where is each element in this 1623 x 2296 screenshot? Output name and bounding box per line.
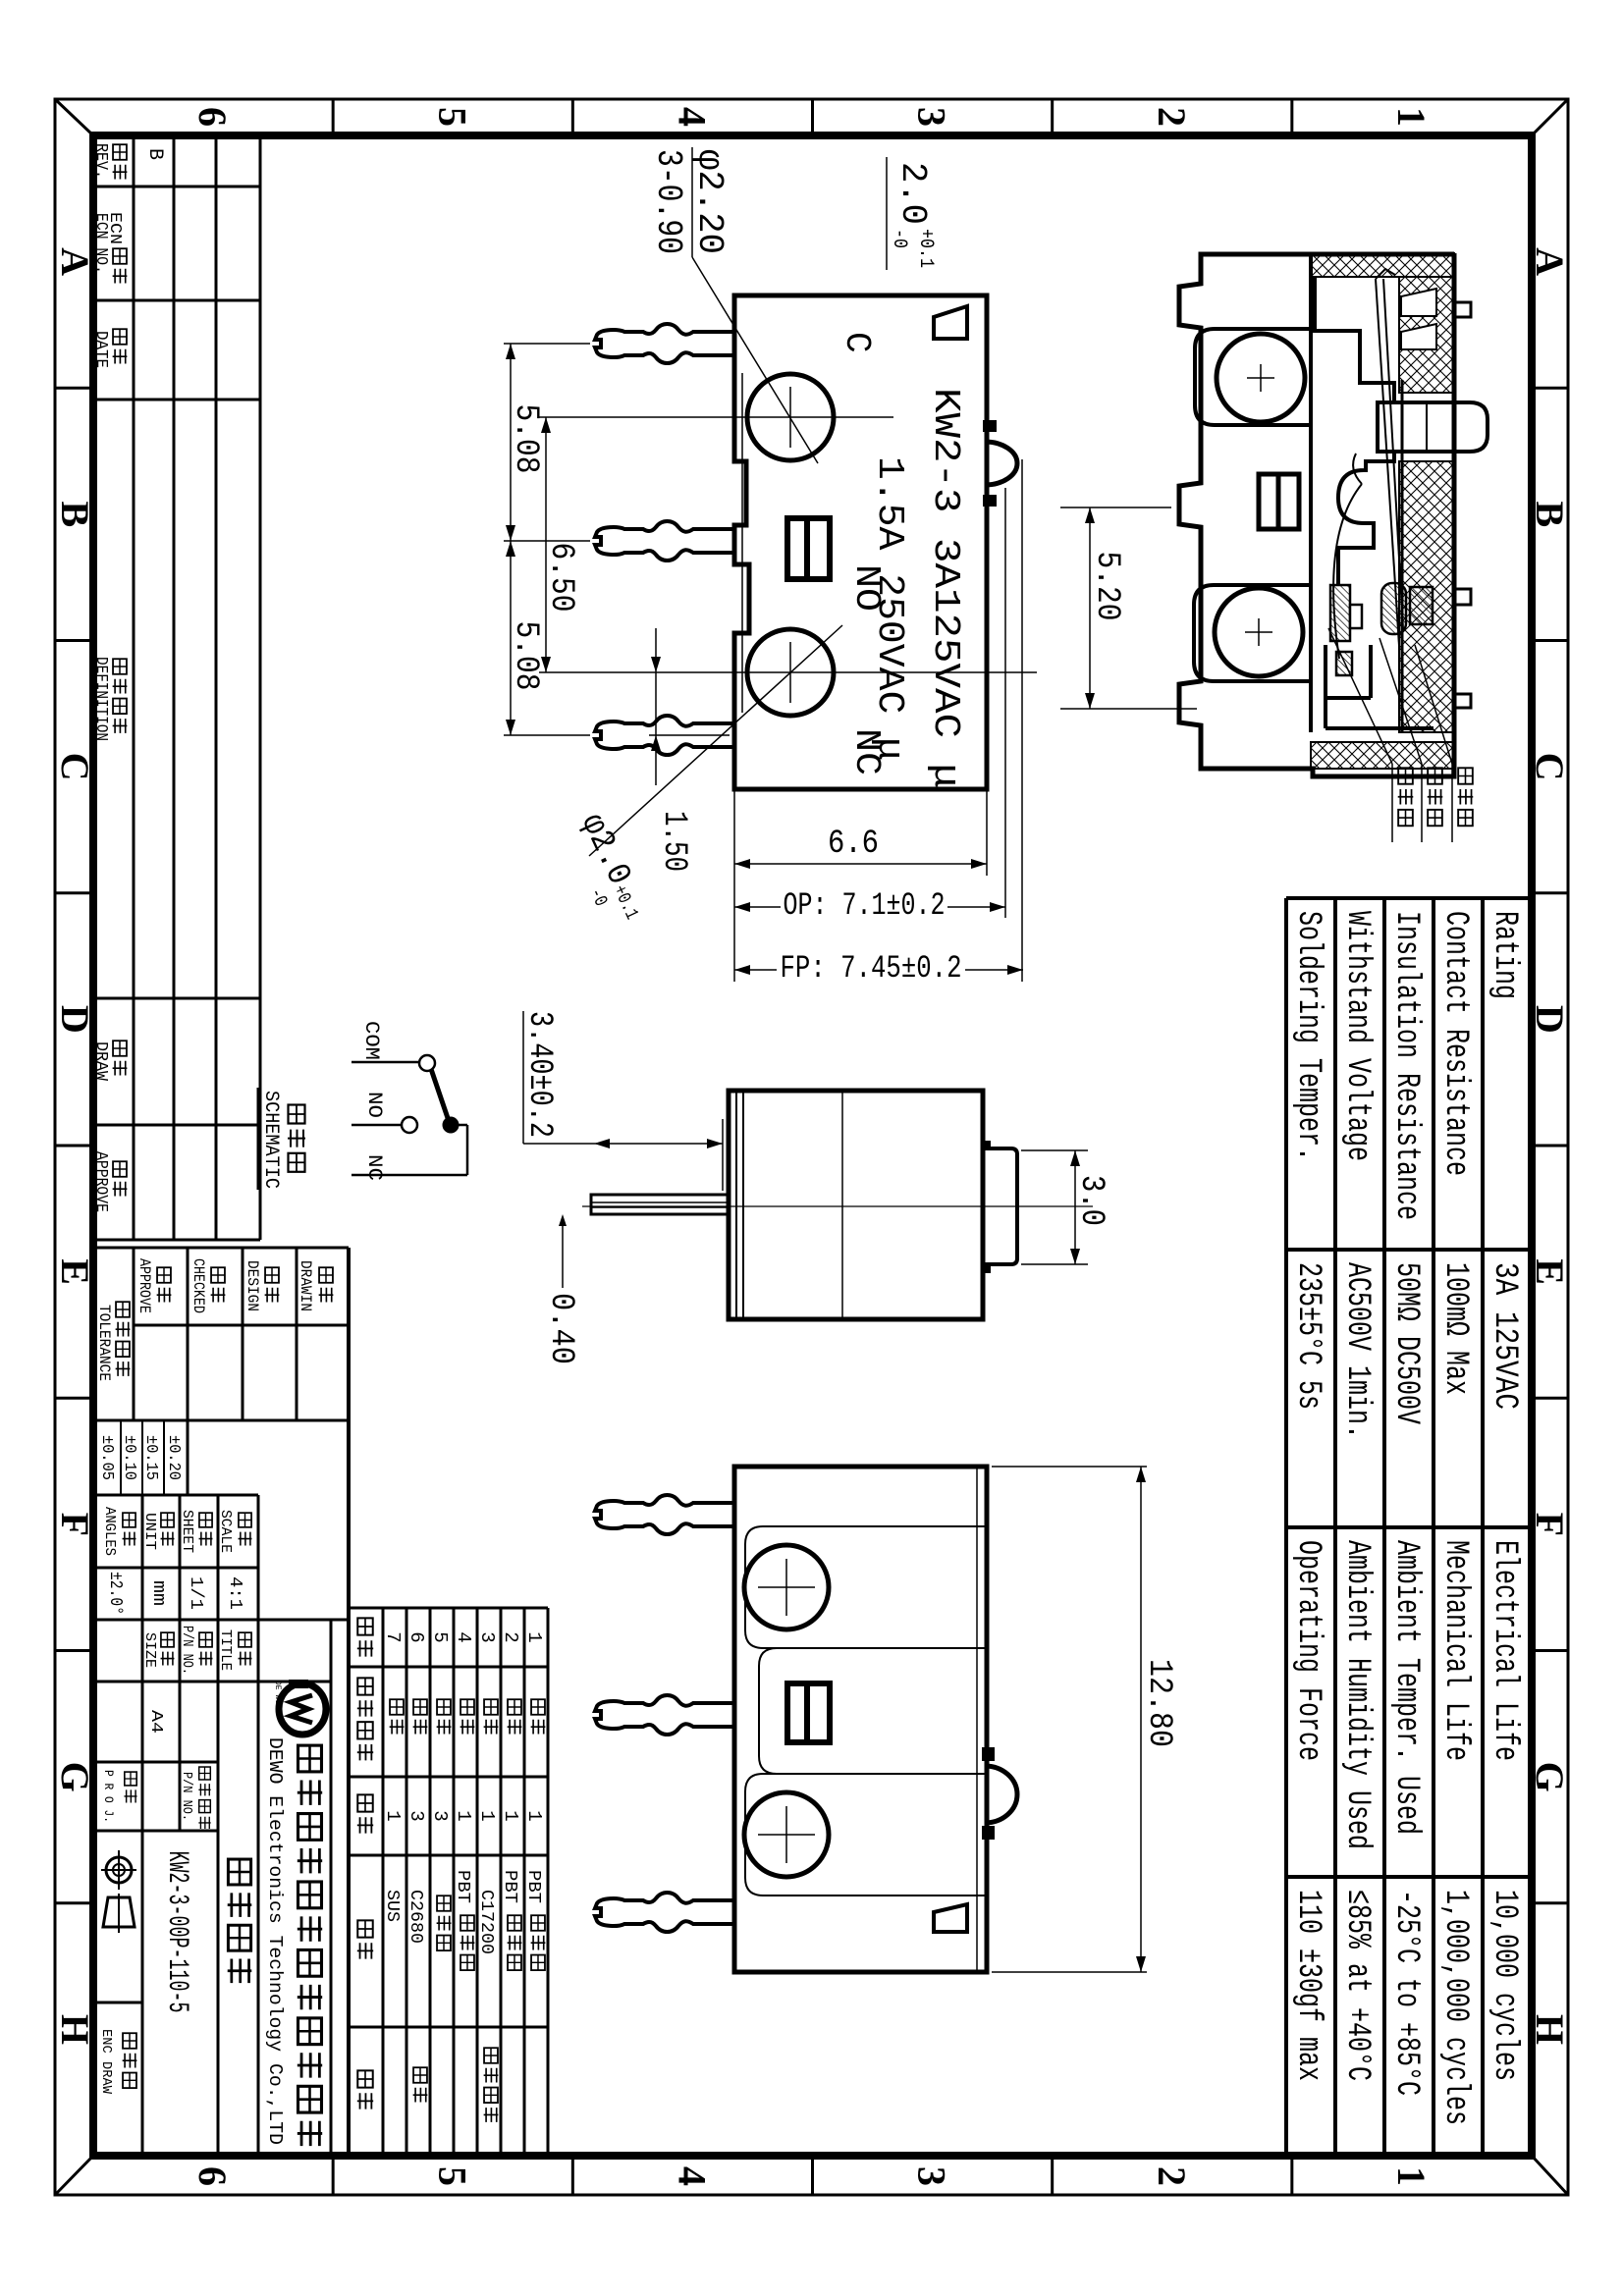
svg-text:±0.10: ±0.10	[120, 1435, 138, 1480]
svg-text:4: 4	[670, 2166, 714, 2186]
svg-text:SHEET: SHEET	[179, 1510, 195, 1553]
svg-text:3A 125VAC: 3A 125VAC	[1486, 1262, 1523, 1410]
svg-text:B: B	[1528, 502, 1572, 528]
svg-text:REV.: REV.	[91, 143, 110, 179]
svg-text:6.6: 6.6	[828, 826, 879, 863]
svg-text:-0: -0	[888, 229, 910, 248]
svg-text:APPROVE: APPROVE	[91, 1151, 110, 1212]
svg-text:ECN NO.: ECN NO.	[91, 213, 110, 274]
svg-text:Withstand Voltage: Withstand Voltage	[1338, 911, 1376, 1161]
svg-text:5.20: 5.20	[1088, 552, 1125, 621]
svg-text:Insulation Resistance: Insulation Resistance	[1387, 911, 1425, 1220]
svg-text:±0.20: ±0.20	[164, 1435, 183, 1480]
svg-text:KW2-3 3A125VAC μ: KW2-3 3A125VAC μ	[924, 388, 966, 788]
svg-text:2: 2	[500, 1631, 521, 1642]
svg-text:PBT: PBT	[453, 1870, 472, 1903]
svg-text:SUS: SUS	[382, 1890, 402, 1922]
svg-text:NO: NO	[846, 564, 887, 612]
svg-text:1: 1	[476, 1810, 498, 1821]
svg-text:4: 4	[670, 107, 714, 127]
svg-text:DE WO: DE WO	[273, 1681, 282, 1704]
svg-text:PBT: PBT	[523, 1870, 543, 1903]
svg-text:1/1: 1/1	[186, 1576, 205, 1610]
svg-text:COM: COM	[359, 1021, 382, 1060]
svg-text:FP: 7.45±0.2: FP: 7.45±0.2	[781, 950, 962, 987]
svg-text:1: 1	[453, 1810, 474, 1821]
svg-text:-25°C to +85°C: -25°C to +85°C	[1387, 1890, 1425, 2096]
svg-text:D: D	[53, 1005, 97, 1034]
svg-text:2.0: 2.0	[893, 162, 933, 225]
svg-text:3: 3	[406, 1810, 427, 1821]
svg-text:APPROVE: APPROVE	[135, 1258, 153, 1313]
svg-text:B: B	[143, 148, 166, 160]
svg-text:4: 4	[453, 1631, 474, 1642]
svg-text:P/N NO.: P/N NO.	[179, 1626, 195, 1675]
svg-text:3: 3	[910, 2166, 954, 2186]
svg-text:AC500V 1min.: AC500V 1min.	[1338, 1262, 1376, 1439]
svg-text:DESIGN: DESIGN	[243, 1260, 261, 1311]
svg-text:Mechanical Life: Mechanical Life	[1436, 1540, 1474, 1761]
svg-text:A: A	[1528, 247, 1572, 276]
svg-text:ANGLES: ANGLES	[101, 1507, 118, 1556]
svg-text:1: 1	[1389, 107, 1434, 127]
svg-text:Electrical Life: Electrical Life	[1486, 1540, 1523, 1761]
svg-text:TITLE: TITLE	[217, 1629, 234, 1671]
svg-text:6.50: 6.50	[542, 543, 579, 613]
svg-text:6: 6	[406, 1631, 427, 1642]
svg-text:mm: mm	[148, 1580, 168, 1606]
svg-text:SCALE: SCALE	[217, 1510, 234, 1553]
svg-text:1: 1	[382, 1810, 404, 1821]
svg-text:4:1: 4:1	[225, 1576, 244, 1610]
svg-text:F: F	[1528, 1513, 1572, 1536]
svg-text:3: 3	[910, 107, 954, 127]
svg-text:P/N NO.: P/N NO.	[179, 1772, 194, 1821]
svg-text:Rating: Rating	[1486, 911, 1523, 999]
svg-text:DATE: DATE	[91, 331, 110, 368]
svg-text:TOLERANCE: TOLERANCE	[95, 1305, 113, 1381]
svg-text:E: E	[1528, 1258, 1572, 1285]
svg-text:PBT: PBT	[500, 1870, 519, 1903]
svg-text:100mΩ Max: 100mΩ Max	[1436, 1262, 1474, 1395]
svg-text:±0.15: ±0.15	[141, 1435, 160, 1480]
svg-text:Soldering Temper.: Soldering Temper.	[1289, 911, 1326, 1161]
svg-text:3.40±0.2: 3.40±0.2	[520, 1011, 558, 1138]
svg-text:±2.0°: ±2.0°	[105, 1572, 125, 1615]
svg-text:OP: 7.1±0.2: OP: 7.1±0.2	[784, 887, 946, 924]
svg-text:Ambient Temper. Used: Ambient Temper. Used	[1387, 1540, 1425, 1835]
svg-text:NO: NO	[362, 1092, 385, 1118]
svg-text:5.08: 5.08	[507, 404, 544, 474]
svg-text:Ambient Humidity Used: Ambient Humidity Used	[1338, 1540, 1376, 1849]
svg-text:C2680: C2680	[406, 1890, 425, 1944]
svg-text:1: 1	[523, 1631, 545, 1642]
svg-text:110 ±30gf max: 110 ±30gf max	[1289, 1890, 1326, 2081]
svg-text:6: 6	[190, 2166, 235, 2186]
svg-text:F: F	[53, 1513, 97, 1536]
svg-text:C: C	[53, 753, 97, 781]
svg-text:2: 2	[1150, 107, 1194, 127]
svg-text:+0.1: +0.1	[914, 229, 937, 268]
svg-text:Contact Resistance: Contact Resistance	[1436, 911, 1474, 1176]
svg-text:G: G	[1528, 1762, 1572, 1792]
svg-text:5: 5	[430, 107, 474, 127]
svg-text:5.08: 5.08	[507, 621, 544, 691]
svg-text:1: 1	[1389, 2166, 1434, 2186]
svg-text:B: B	[53, 502, 97, 528]
svg-text:10,000 cycles: 10,000 cycles	[1486, 1890, 1523, 2081]
svg-text:CHECKED: CHECKED	[189, 1258, 207, 1313]
svg-text:φ2.20: φ2.20	[689, 149, 730, 254]
svg-text:C: C	[837, 332, 877, 353]
svg-text:NC: NC	[846, 728, 887, 775]
svg-text:SIZE: SIZE	[141, 1632, 158, 1668]
svg-text:G: G	[53, 1762, 97, 1792]
svg-text:Operating Force: Operating Force	[1289, 1540, 1326, 1761]
svg-text:C17200: C17200	[476, 1890, 496, 1954]
svg-text:0.40: 0.40	[542, 1293, 579, 1364]
svg-text:3.0: 3.0	[1072, 1175, 1109, 1226]
svg-text:5: 5	[430, 2166, 474, 2186]
svg-text:≤85% at +40°C: ≤85% at +40°C	[1338, 1890, 1376, 2081]
svg-text:SCHEMATIC: SCHEMATIC	[259, 1091, 282, 1189]
svg-text:50MΩ DC500V: 50MΩ DC500V	[1387, 1262, 1425, 1424]
svg-text:NC: NC	[362, 1154, 385, 1181]
svg-text:7: 7	[382, 1631, 404, 1642]
svg-text:1: 1	[523, 1810, 545, 1821]
svg-text:ENC DRAW: ENC DRAW	[98, 2029, 114, 2095]
svg-text:6: 6	[190, 107, 235, 127]
svg-text:3: 3	[476, 1631, 498, 1642]
svg-text:1,000,000 cycles: 1,000,000 cycles	[1436, 1890, 1474, 2125]
svg-text:UNIT: UNIT	[141, 1513, 158, 1550]
svg-text:E: E	[53, 1258, 97, 1285]
svg-text:3: 3	[429, 1810, 451, 1821]
svg-text:2: 2	[1150, 2166, 1194, 2186]
svg-text:C: C	[1528, 753, 1572, 781]
svg-text:H: H	[1528, 2014, 1572, 2045]
svg-text:D: D	[1528, 1005, 1572, 1034]
svg-text:DEWO Electronics Technology Co: DEWO Electronics Technology Co.,LTD	[264, 1737, 286, 2145]
svg-text:1: 1	[500, 1810, 521, 1821]
svg-text:12.80: 12.80	[1140, 1659, 1177, 1747]
svg-text:DRAWIN: DRAWIN	[297, 1260, 314, 1311]
svg-text:H: H	[53, 2014, 97, 2045]
svg-text:KW2-3-00P-110-5: KW2-3-00P-110-5	[160, 1851, 193, 2013]
svg-text:DRAW: DRAW	[91, 1041, 110, 1082]
svg-text:3-0.90: 3-0.90	[648, 149, 688, 254]
svg-text:1.50: 1.50	[655, 811, 692, 872]
svg-text:DEFINITION: DEFINITION	[91, 657, 110, 741]
svg-text:P R O J.: P R O J.	[101, 1770, 116, 1823]
svg-text:A4: A4	[146, 1710, 165, 1734]
svg-text:5: 5	[429, 1631, 451, 1642]
svg-text:235±5°C 5s: 235±5°C 5s	[1289, 1262, 1326, 1410]
svg-text:±0.05: ±0.05	[97, 1435, 116, 1480]
